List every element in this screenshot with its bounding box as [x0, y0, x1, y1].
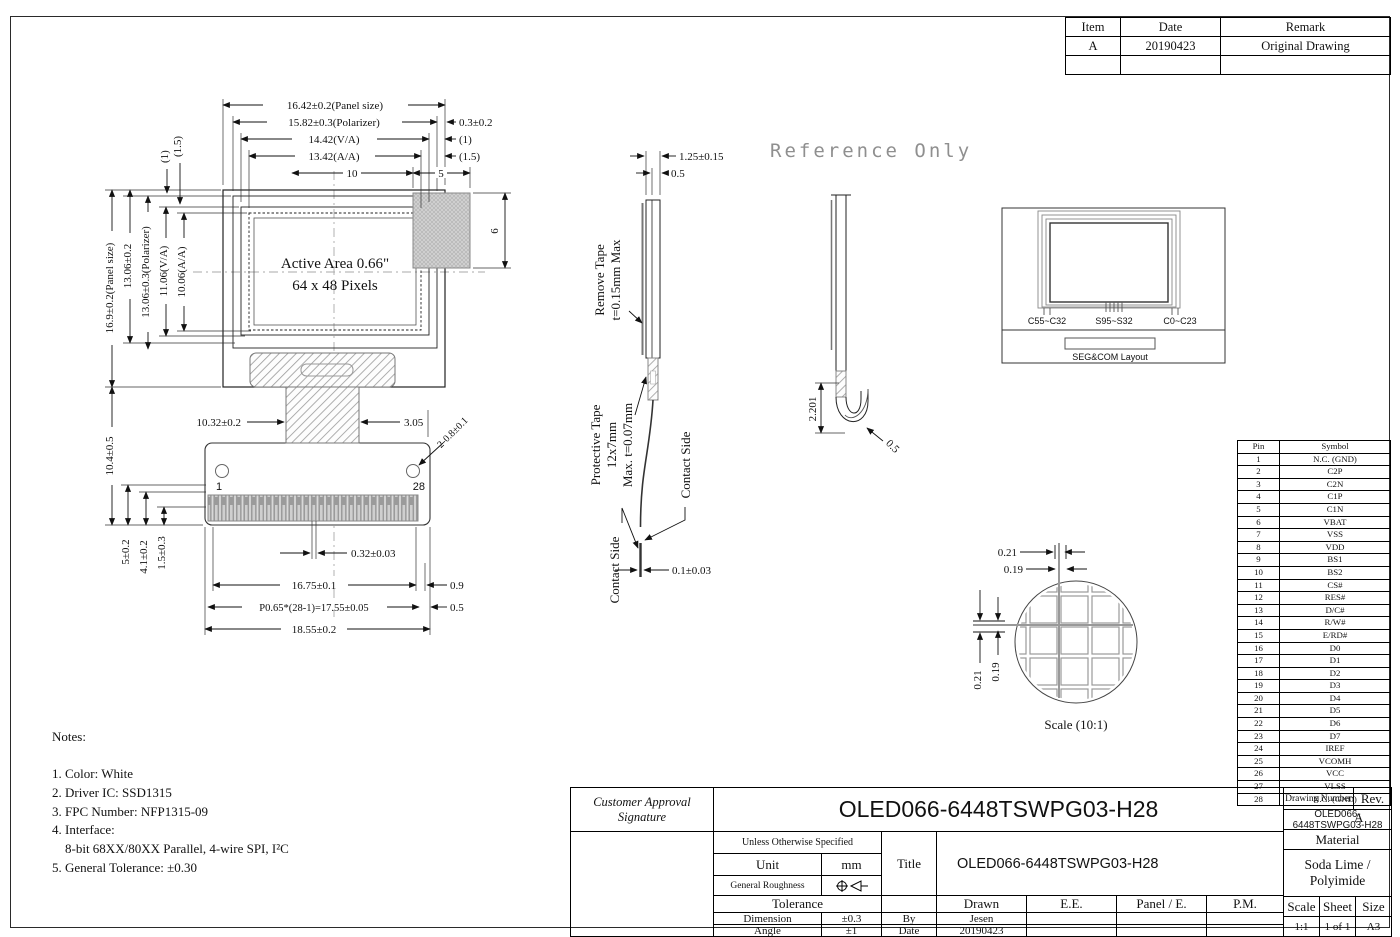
dim-polarizer-height: 13.06±0.3(Polarizer): [140, 226, 152, 318]
pin-number: 15: [1238, 629, 1280, 642]
pin-symbol: CS#: [1280, 579, 1391, 592]
pin-number: 18: [1238, 667, 1280, 680]
scale-label: Scale: [1283, 896, 1319, 916]
dimension-label: Dimension: [713, 912, 821, 924]
date-value: 20190423: [936, 924, 1026, 936]
remove-tape-label-2: t=0.15mm Max: [608, 239, 623, 320]
rev-value: A: [1354, 810, 1363, 826]
empty-cell: [1116, 912, 1206, 924]
note-line: 3. FPC Number: NFP1315-09: [52, 803, 289, 822]
empty-cell: [1116, 924, 1206, 936]
pixel-scale-caption: Scale (10:1): [1044, 717, 1107, 732]
protective-tape-label-3: Max. t=0.07mm: [620, 403, 635, 487]
protective-tape-label-1: Protective Tape: [588, 404, 603, 485]
size-value: A3: [1355, 916, 1391, 936]
dim-05-side: 0.5: [671, 168, 685, 180]
pin-symbol: R/W#: [1280, 617, 1391, 630]
product-name: OLED066-6448TSWPG03-H28: [713, 788, 1283, 831]
pin-row: 19 D3: [1238, 680, 1391, 693]
pin-number: 24: [1238, 743, 1280, 756]
pin-number: 17: [1238, 655, 1280, 668]
segcom-layout-diagram: C55~C32 S95~S32 C0~C23 SEG&COM Layout: [1000, 205, 1230, 370]
revision-remark: [1221, 56, 1391, 75]
title-block: Customer Approval Signature OLED066-6448…: [570, 787, 1392, 937]
empty-cell: [881, 895, 936, 912]
pin-table: Pin Symbol 1 N.C. (GND) 2 C2P 3 C2N 4 C1…: [1237, 440, 1391, 806]
pin-number: 21: [1238, 705, 1280, 718]
pin-symbol: C2P: [1280, 466, 1391, 479]
pin-number: 8: [1238, 541, 1280, 554]
dim-1675: 16.75±0.1: [292, 580, 337, 592]
dim-019-v: 0.19: [990, 662, 1002, 682]
pin-number: 4: [1238, 491, 1280, 504]
dim-panel-height: 16.9±0.2(Panel size): [104, 242, 116, 333]
pin-number: 23: [1238, 730, 1280, 743]
pin-row: 11 CS#: [1238, 579, 1391, 592]
unit-value: mm: [821, 853, 881, 875]
pin-row: 2 C2P: [1238, 466, 1391, 479]
pin-row: 4 C1P: [1238, 491, 1391, 504]
pin1-label: 1: [216, 481, 222, 493]
dim-1-left: (1): [159, 150, 171, 163]
notes-title: Notes:: [52, 728, 289, 747]
sheet-label: Sheet: [1319, 896, 1355, 916]
fpc-footprint: [1065, 338, 1155, 349]
alignment-hole-right: [407, 465, 420, 478]
customer-approval-cell: Customer Approval Signature: [571, 788, 713, 831]
pin-number: 26: [1238, 768, 1280, 781]
pin-symbol: D0: [1280, 642, 1391, 655]
pin-number: 10: [1238, 566, 1280, 579]
folded-view-drawing: 2.201 0.5: [805, 145, 935, 485]
dim-019-h: 0.19: [1004, 564, 1024, 576]
dim-41: 4.1±0.2: [138, 540, 150, 574]
sheet-value: 1 of 1: [1319, 916, 1355, 936]
dim-05-folded: 0.5: [883, 437, 902, 456]
dim-032: 0.32±0.03: [351, 548, 396, 560]
pin-symbol: D5: [1280, 705, 1391, 718]
notes-list: 1. Color: White2. Driver IC: SSD13153. F…: [52, 765, 289, 878]
dim-1-right: (1): [459, 134, 472, 146]
dim-03: 0.3±0.2: [459, 117, 493, 129]
revision-col-date: Date: [1121, 18, 1221, 37]
pin-symbol: VBAT: [1280, 516, 1391, 529]
pin-number: 6: [1238, 516, 1280, 529]
pin-row: 8 VDD: [1238, 541, 1391, 554]
signal-ticks: [1044, 302, 1178, 315]
dim-05: 0.5: [450, 602, 464, 614]
remove-tape-area: [413, 193, 470, 268]
material-label: Material: [1283, 829, 1391, 849]
dim-panel-width: 16.42±0.2(Panel size): [287, 100, 383, 112]
pin-symbol: D7: [1280, 730, 1391, 743]
pin-contacts: [208, 495, 418, 521]
revision-remark: Original Drawing: [1221, 37, 1391, 56]
pin-row: 5 C1N: [1238, 503, 1391, 516]
dim-6: 6: [489, 228, 501, 234]
pin-row: 9 BS1: [1238, 554, 1391, 567]
dim-aa-width: 13.42(A/A): [308, 151, 359, 163]
pin-symbol: BS1: [1280, 554, 1391, 567]
pin-row: 22 D6: [1238, 718, 1391, 731]
driver-ic-area: [250, 353, 395, 387]
segcom-caption: SEG&COM Layout: [1072, 352, 1148, 362]
revision-date: [1121, 56, 1221, 75]
dim-1306: 13.06±0.2: [122, 244, 134, 289]
pin-row: 23 D7: [1238, 730, 1391, 743]
pixel-grid: [999, 565, 1150, 716]
pin-number: 13: [1238, 604, 1280, 617]
dim-021-h: 0.21: [998, 547, 1017, 559]
pin-row: 7 VSS: [1238, 529, 1391, 542]
pin-symbol: BS2: [1280, 566, 1391, 579]
dim-va-height: 11.06(V/A): [158, 245, 170, 296]
pin-row: 15 E/RD#: [1238, 629, 1391, 642]
ee-label: E.E.: [1026, 895, 1116, 912]
unless-otherwise-label: Unless Otherwise Specified: [713, 831, 881, 853]
pin-symbol: C1N: [1280, 503, 1391, 516]
pin-row: 10 BS2: [1238, 566, 1391, 579]
revision-date: 20190423: [1121, 37, 1221, 56]
pin-row: 17 D1: [1238, 655, 1391, 668]
pin-row: 26 VCC: [1238, 768, 1391, 781]
pin-symbol: VCOMH: [1280, 755, 1391, 768]
unit-label: Unit: [713, 853, 821, 875]
note-line: 1. Color: White: [52, 765, 289, 784]
pin-number: 9: [1238, 554, 1280, 567]
drawing-number-label: Drawing Number: [1283, 788, 1353, 809]
pin-row: 25 VCOMH: [1238, 755, 1391, 768]
roughness-symbol-cell: [821, 875, 881, 895]
pin-number: 3: [1238, 478, 1280, 491]
roughness-label: General Roughness: [713, 875, 821, 895]
dim-5-02: 5±0.2: [120, 539, 132, 564]
pin-symbol: E/RD#: [1280, 629, 1391, 642]
revision-col-remark: Remark: [1221, 18, 1391, 37]
pin-number: 20: [1238, 692, 1280, 705]
pin-row: 12 RES#: [1238, 592, 1391, 605]
pin-symbol: D/C#: [1280, 604, 1391, 617]
pin-number: 25: [1238, 755, 1280, 768]
active-area-label-2: 64 x 48 Pixels: [292, 278, 378, 294]
notes-section: Notes: 1. Color: White2. Driver IC: SSD1…: [52, 728, 289, 878]
pin-row: 20 D4: [1238, 692, 1391, 705]
com-right-label: C0~C23: [1163, 316, 1196, 326]
dim-15-right: (1.5): [459, 151, 480, 163]
symbol-col-header: Symbol: [1280, 441, 1391, 454]
size-label: Size: [1355, 896, 1391, 916]
pin-symbol: D1: [1280, 655, 1391, 668]
fpc-profile: [641, 400, 654, 527]
material-value: Soda Lime / Polyimide: [1283, 849, 1391, 896]
pin-col-header: Pin: [1238, 441, 1280, 454]
dim-021-v: 0.21: [972, 670, 984, 689]
pin-symbol: RES#: [1280, 592, 1391, 605]
signature-space: [571, 831, 713, 936]
dim-15-03: 1.5±0.3: [156, 536, 168, 570]
pin-symbol: N.C. (GND): [1280, 453, 1391, 466]
angle-label: Angle: [713, 924, 821, 936]
pin-symbol: VDD: [1280, 541, 1391, 554]
dim-holes: 2-0.8±0.1: [435, 415, 470, 450]
pin-symbol: C2N: [1280, 478, 1391, 491]
pin-symbol: VCC: [1280, 768, 1391, 781]
revision-col-item: Item: [1066, 18, 1121, 37]
fold-inner: [846, 391, 861, 413]
date-label: Date: [881, 924, 936, 936]
pin-row: 18 D2: [1238, 667, 1391, 680]
revision-item: A: [1066, 37, 1121, 56]
dimension-value: ±0.3: [821, 912, 881, 924]
pin-number: 14: [1238, 617, 1280, 630]
front-view-drawing: Active Area 0.66" 64 x 48 Pixels 1 28: [55, 85, 595, 645]
by-value: Jesen: [936, 912, 1026, 924]
dim-aa-height: 10.06(A/A): [176, 246, 188, 297]
pin-row: 1 N.C. (GND): [1238, 453, 1391, 466]
dim-125: 1.25±0.15: [679, 151, 724, 163]
dim-305: 3.05: [404, 417, 424, 429]
general-roughness-icon: [834, 879, 870, 893]
pixel-detail-drawing: 0.21 0.19 0.21 0.19 Scale (10:1): [945, 535, 1175, 735]
title-label: Title: [881, 831, 936, 895]
pin-number: 16: [1238, 642, 1280, 655]
pin-symbol: D2: [1280, 667, 1391, 680]
pin-number: 12: [1238, 592, 1280, 605]
pin-number: 1: [1238, 453, 1280, 466]
pin-symbol: VSS: [1280, 529, 1391, 542]
rev-label: Rev.: [1353, 788, 1391, 809]
dim-1032: 10.32±0.2: [196, 417, 241, 429]
pin28-label: 28: [413, 481, 425, 493]
customer-approval-label: Customer Approval: [593, 795, 691, 810]
empty-cell: [1206, 924, 1283, 936]
dim-labels-top: 16.42±0.2(Panel size) 15.82±0.3(Polarize…: [263, 99, 493, 180]
protective-tape-label-2: 12x7mm: [604, 422, 619, 468]
note-line: 4. Interface:: [52, 821, 289, 840]
pin-symbol: D4: [1280, 692, 1391, 705]
alignment-hole-left: [216, 465, 229, 478]
pin-row: 16 D0: [1238, 642, 1391, 655]
contact-side-label-right: Contact Side: [678, 431, 693, 498]
angle-value: ±1: [821, 924, 881, 936]
oled-screen: [1050, 223, 1168, 302]
revision-header-row: Item Date Remark: [1066, 18, 1391, 37]
dim-10: 10: [347, 168, 359, 180]
pin-number: 11: [1238, 579, 1280, 592]
dim-01: 0.1±0.03: [672, 565, 712, 577]
note-line: 5. General Tolerance: ±0.30: [52, 859, 289, 878]
revision-row: A 20190423 Original Drawing: [1066, 37, 1391, 56]
note-line: 8-bit 68XX/80XX Parallel, 4-wire SPI, I²…: [52, 840, 289, 859]
fpc-neck: [286, 387, 359, 443]
tolerance-label: Tolerance: [713, 895, 881, 912]
pin-symbol: D6: [1280, 718, 1391, 731]
dim-5: 5: [438, 168, 444, 180]
drawn-label: Drawn: [936, 895, 1026, 912]
dim-pitch: P0.65*(28-1)=17.55±0.05: [259, 603, 368, 614]
pin-number: 7: [1238, 529, 1280, 542]
dim-15-left: (1.5): [172, 136, 184, 157]
pin-row: 6 VBAT: [1238, 516, 1391, 529]
dim-va-width: 14.42(V/A): [308, 134, 359, 146]
drawing-sheet: Item Date Remark A 20190423 Original Dra…: [0, 0, 1400, 937]
empty-cell: [1026, 912, 1116, 924]
side-view-drawing: 1.25±0.15 0.5 Remove Tape t=0.15mm Max P…: [585, 115, 755, 655]
pin-number: 5: [1238, 503, 1280, 516]
pin-row: 24 IREF: [1238, 743, 1391, 756]
revision-item: [1066, 56, 1121, 75]
pin-number: 22: [1238, 718, 1280, 731]
contact-side-label-left: Contact Side: [607, 536, 622, 603]
remove-tape-label-1: Remove Tape: [592, 244, 607, 316]
pin-symbol: IREF: [1280, 743, 1391, 756]
note-line: 2. Driver IC: SSD1315: [52, 784, 289, 803]
glass-section: [646, 200, 660, 358]
active-area-label-1: Active Area 0.66": [281, 256, 389, 272]
revision-row: [1066, 56, 1391, 75]
scale-value: 1:1: [1283, 916, 1319, 936]
pin-number: 2: [1238, 466, 1280, 479]
fold-tail: [845, 389, 868, 418]
dim-104: 10.4±0.5: [104, 436, 116, 476]
pm-label: P.M.: [1206, 895, 1283, 912]
empty-cell: [1026, 924, 1116, 936]
dim-1855: 18.55±0.2: [292, 624, 337, 636]
drawing-number-value: OLED066-6448TSWPG03-H28: [1283, 809, 1391, 829]
empty-cell: [1206, 912, 1283, 924]
pin-row: 21 D5: [1238, 705, 1391, 718]
revision-table: Item Date Remark A 20190423 Original Dra…: [1065, 17, 1391, 75]
pin-symbol: D3: [1280, 680, 1391, 693]
dim-2201: 2.201: [807, 397, 819, 422]
pin-row: 14 R/W#: [1238, 617, 1391, 630]
pin-number: 19: [1238, 680, 1280, 693]
dim-09: 0.9: [450, 580, 464, 592]
pin-row: 3 C2N: [1238, 478, 1391, 491]
seg-center-label: S95~S32: [1095, 316, 1132, 326]
com-left-label: C55~C32: [1028, 316, 1066, 326]
pin-symbol: C1P: [1280, 491, 1391, 504]
panel-e-label: Panel / E.: [1116, 895, 1206, 912]
pin-row: 13 D/C#: [1238, 604, 1391, 617]
by-label: By: [881, 912, 936, 924]
pin-table-header: Pin Symbol: [1238, 441, 1391, 454]
title-value: OLED066-6448TSWPG03-H28: [936, 831, 1283, 895]
dim-polarizer-width: 15.82±0.3(Polarizer): [288, 117, 380, 129]
signature-label: Signature: [618, 810, 666, 825]
